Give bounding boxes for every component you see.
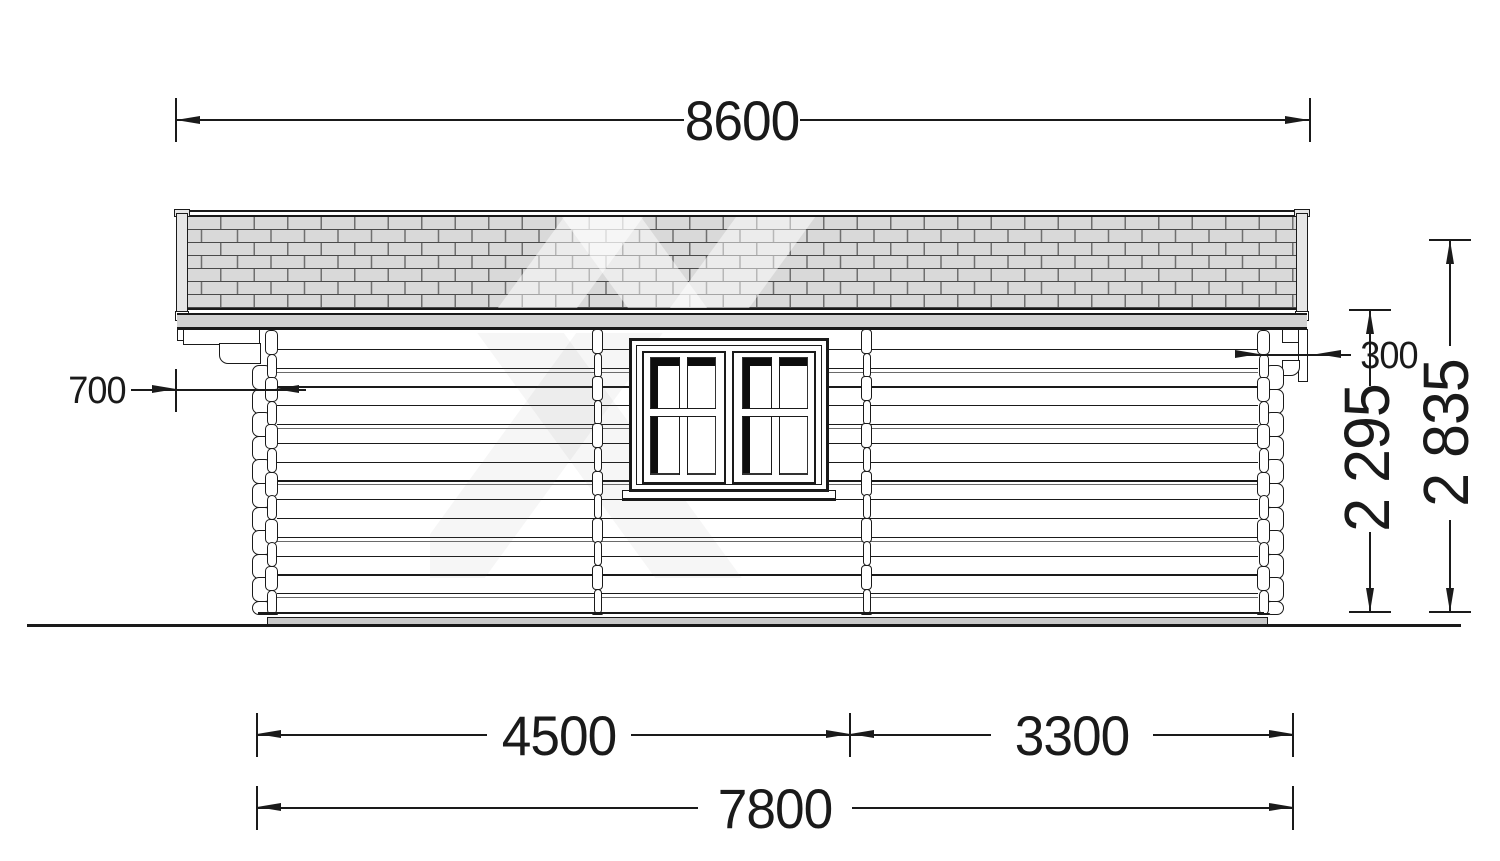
- partition-log-end: [861, 518, 872, 543]
- partition-log-end: [861, 565, 872, 590]
- partition-log-end: [592, 565, 603, 590]
- dim-left-overhang-ext: [175, 369, 177, 412]
- dim-section-left-line: [631, 734, 850, 736]
- dim-total-length-label: 7800: [718, 781, 833, 837]
- dim-arrow-left: [1317, 350, 1341, 358]
- corner-log-end: [1259, 448, 1270, 473]
- dim-arrow-left: [257, 803, 281, 811]
- partition-log-end: [592, 471, 603, 496]
- corner-log-end: [1257, 566, 1270, 591]
- corner-log-end: [267, 542, 278, 567]
- corner-log-end: [1259, 542, 1270, 567]
- partition-log-end: [861, 423, 872, 448]
- ground-line: [27, 624, 1461, 627]
- dim-arrow-left: [275, 385, 299, 393]
- dim-arrow-down: [1446, 588, 1454, 612]
- dim-arrow-right: [1235, 350, 1259, 358]
- dim-wall-height-label: 2 295: [1335, 384, 1399, 531]
- corner-log-end: [1257, 519, 1270, 544]
- partition-log-end: [863, 589, 872, 614]
- corner-log-end: [267, 495, 278, 520]
- partition-log-end: [594, 589, 603, 614]
- partition-log-end: [861, 329, 872, 354]
- partition-log-end: [594, 447, 603, 472]
- partition-log-end: [863, 541, 872, 566]
- dim-total-width-line: [176, 119, 684, 121]
- corner-log-end: [1259, 401, 1270, 426]
- corner-log-end: [1259, 354, 1270, 379]
- partition-log-end: [861, 376, 872, 401]
- dim-wall-height-line: [1369, 310, 1371, 386]
- dim-wall-height-ext-bottom: [1349, 611, 1391, 613]
- partition-log-end: [592, 329, 603, 354]
- dim-total-height-line: [1449, 240, 1451, 346]
- dim-total-length-line: [257, 807, 698, 809]
- dim-arrow-right: [826, 730, 850, 738]
- corner-log-end: [265, 424, 278, 449]
- dim-total-width-ext-right: [1309, 98, 1311, 142]
- dim-arrow-left: [176, 116, 200, 124]
- partition-log-end: [592, 376, 603, 401]
- corner-log-end: [265, 472, 278, 497]
- partition-log-end: [594, 400, 603, 425]
- corner-log-end: [267, 401, 278, 426]
- dim-total-width-label: 8600: [685, 93, 800, 149]
- partition-log-end: [863, 400, 872, 425]
- corner-log-end: [1257, 472, 1270, 497]
- dim-total-height-label: 2 835: [1414, 359, 1478, 506]
- partition-log-end: [592, 518, 603, 543]
- partition-log-end: [592, 423, 603, 448]
- corner-log-end: [267, 354, 278, 379]
- corner-log-end: [1259, 590, 1270, 615]
- dim-arrow-left: [257, 730, 281, 738]
- dim-section-left-label: 4500: [502, 708, 617, 764]
- dim-total-length-line: [852, 807, 1293, 809]
- partition-log-end: [863, 494, 872, 519]
- corner-log-end: [265, 519, 278, 544]
- partition-log-end: [863, 353, 872, 378]
- corner-log-end: [267, 590, 278, 615]
- partition-log-end: [861, 471, 872, 496]
- dim-section-left-line: [257, 734, 487, 736]
- corner-log-end: [1257, 424, 1270, 449]
- window-muntin-horizontal-left: [650, 408, 716, 417]
- corner-log-end: [265, 330, 278, 355]
- corner-log-end: [1259, 495, 1270, 520]
- dim-section-right-label: 3300: [1015, 708, 1130, 764]
- dim-total-height-ext-bottom: [1429, 611, 1471, 613]
- wall-bottom-line: [258, 612, 1264, 614]
- dim-arrow-left: [850, 730, 874, 738]
- dim-arrow-right: [1285, 116, 1309, 124]
- dim-total-width-line: [800, 119, 1309, 121]
- partition-log-end: [594, 541, 603, 566]
- window-center-mullion: [724, 351, 734, 484]
- corner-log-end: [1257, 377, 1270, 402]
- dim-arrow-right: [1269, 730, 1293, 738]
- partition-log-end: [594, 494, 603, 519]
- partition-log-end: [594, 353, 603, 378]
- dim-arrow-right: [1269, 803, 1293, 811]
- dim-arrow-right: [152, 385, 176, 393]
- elevation-drawing: 8600 700 300 2 295 2 835 4500 3300 7800: [0, 0, 1500, 861]
- dim-left-overhang-label: 700: [68, 372, 125, 410]
- partition-log-end: [863, 447, 872, 472]
- corner-log-end: [267, 448, 278, 473]
- corner-log-end: [265, 566, 278, 591]
- dim-arrow-down: [1366, 588, 1374, 612]
- window-muntin-horizontal-right: [742, 408, 808, 417]
